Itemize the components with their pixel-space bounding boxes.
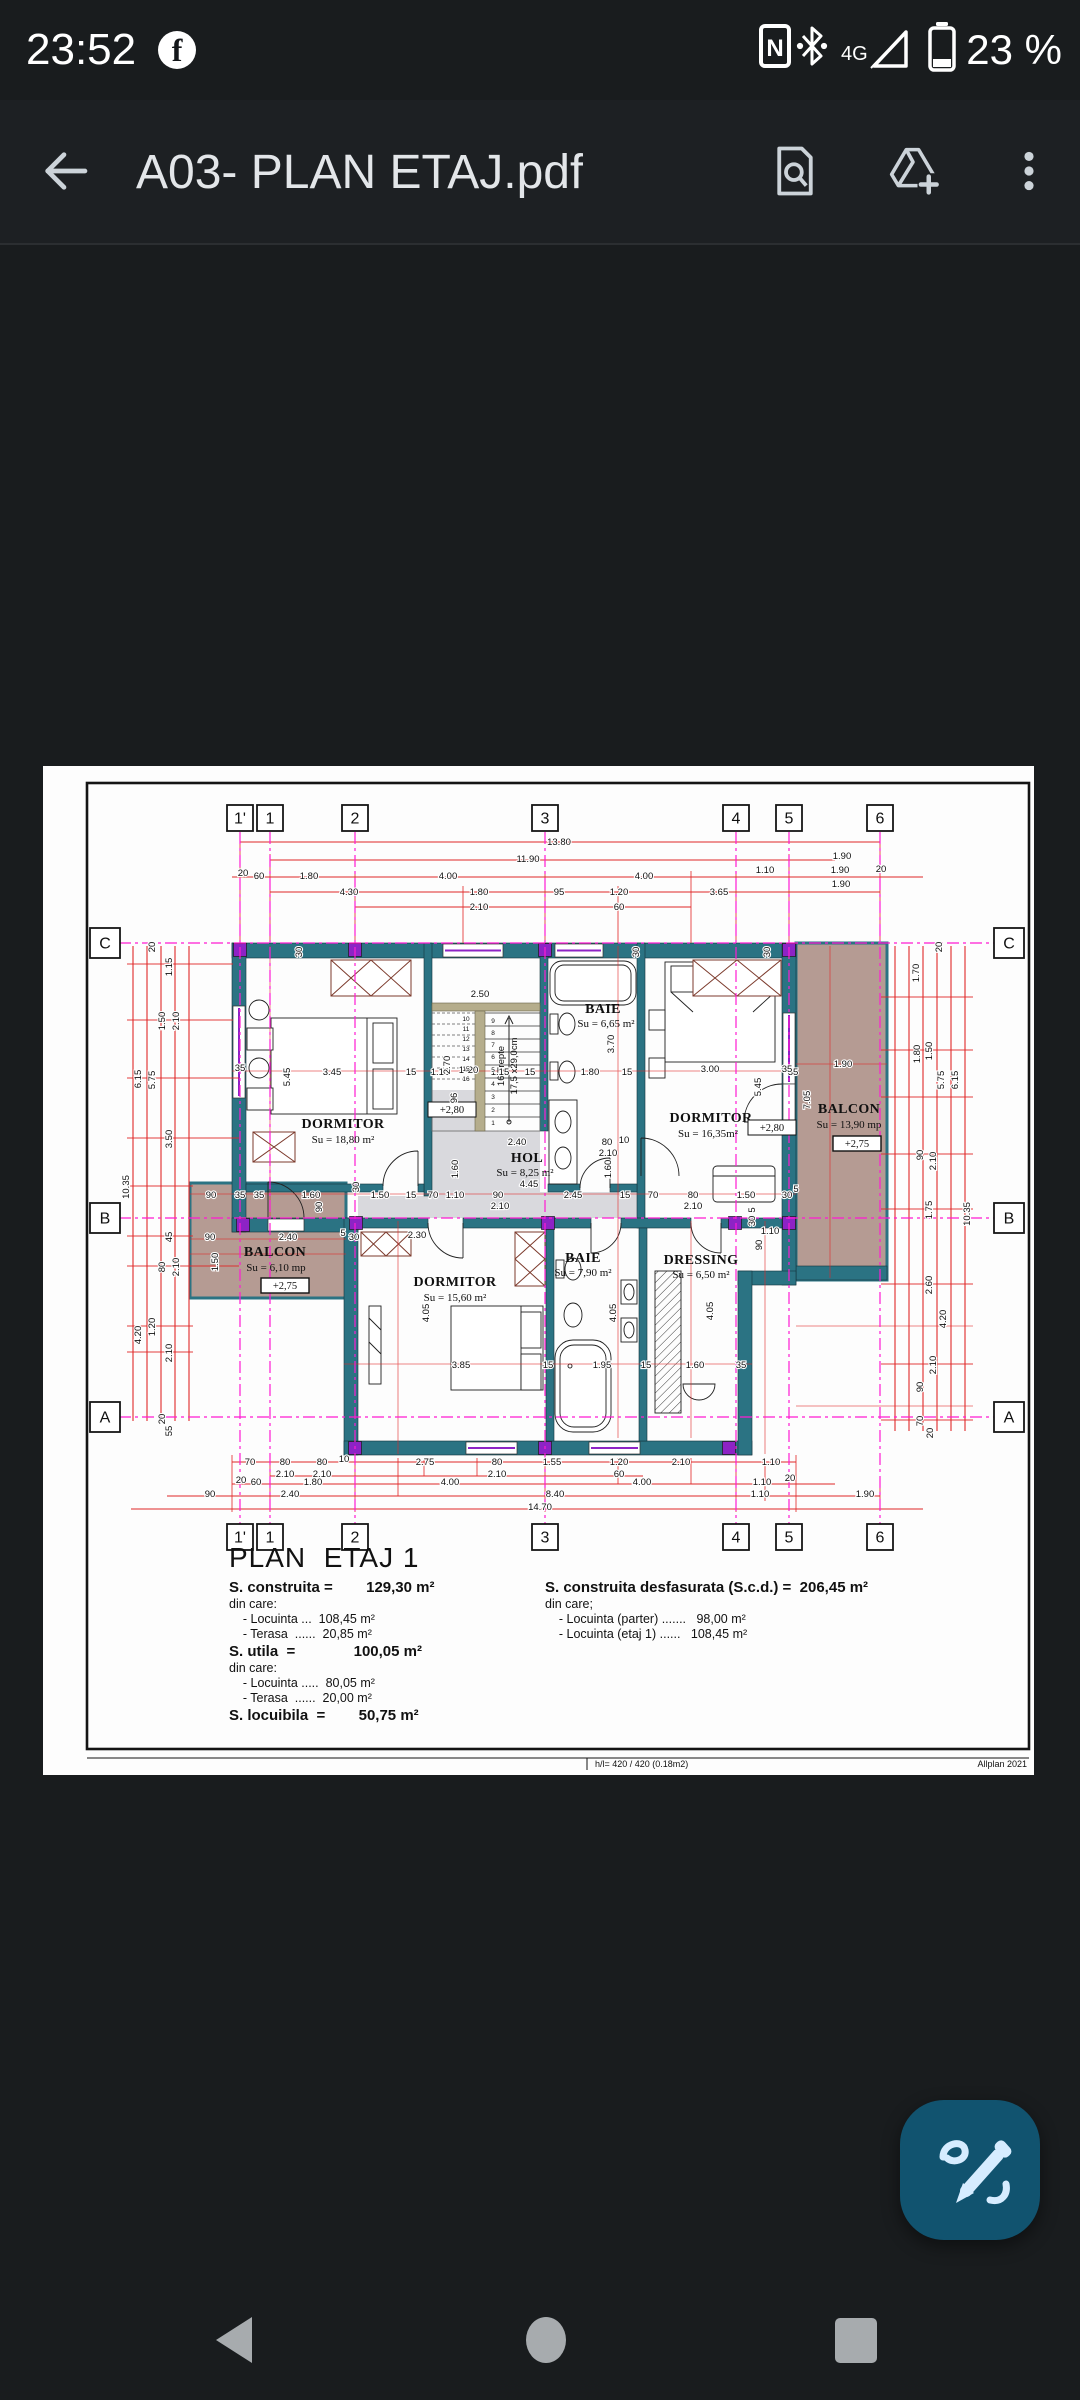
back-triangle-icon	[196, 2301, 276, 2381]
svg-text:4.05: 4.05	[421, 1304, 432, 1323]
room-name: DORMITOR	[301, 1117, 385, 1132]
svg-text:5.45: 5.45	[282, 1068, 293, 1087]
svg-text:35: 35	[736, 1360, 747, 1371]
svg-text:1.50: 1.50	[210, 1253, 221, 1272]
svg-text:5: 5	[491, 1067, 495, 1074]
level-value: +2,80	[760, 1123, 784, 1134]
svg-text:1.10: 1.10	[446, 1190, 465, 1201]
svg-text:1: 1	[266, 811, 275, 828]
svg-text:16: 16	[462, 1076, 470, 1083]
svg-text:4.30: 4.30	[340, 887, 359, 898]
facebook-icon: f	[158, 31, 196, 69]
svg-text:90: 90	[915, 1382, 926, 1393]
svg-text:30: 30	[631, 947, 642, 958]
svg-text:4.20: 4.20	[133, 1326, 144, 1345]
svg-text:20: 20	[925, 1428, 936, 1439]
floor-plan-drawing: 1'1234561'123456CBACBA DORMITOR Su = 18,…	[43, 766, 1034, 1775]
svg-text:10: 10	[619, 1135, 630, 1146]
svg-text:1.80: 1.80	[581, 1067, 600, 1078]
plan-title: PLAN ETAJ 1	[229, 1542, 435, 1574]
svg-text:15: 15	[406, 1190, 417, 1201]
svg-text:1.50: 1.50	[371, 1190, 390, 1201]
summary-line: - Terasa ...... 20,00 m²	[229, 1691, 435, 1706]
svg-text:35: 35	[254, 1190, 265, 1201]
summary-line: - Locuinta (etaj 1) ...... 108,45 m²	[545, 1627, 868, 1642]
svg-text:1.50: 1.50	[737, 1190, 756, 1201]
svg-text:30: 30	[762, 947, 773, 958]
svg-text:4.05: 4.05	[705, 1302, 716, 1321]
battery-percent: 23 %	[966, 26, 1062, 74]
svg-text:2.10: 2.10	[672, 1457, 691, 1468]
find-in-page-button[interactable]	[762, 138, 828, 207]
svg-text:1.10: 1.10	[756, 865, 775, 876]
level-value: +2,75	[273, 1281, 297, 1292]
svg-text:2.75: 2.75	[416, 1457, 435, 1468]
summary-line: - Terasa ...... 20,85 m²	[229, 1627, 435, 1642]
svg-text:20: 20	[157, 1414, 168, 1425]
level-value: +2,80	[440, 1105, 464, 1116]
svg-text:95: 95	[554, 887, 565, 898]
svg-text:5.45: 5.45	[753, 1078, 764, 1097]
svg-text:20: 20	[236, 1475, 247, 1486]
svg-text:13: 13	[462, 1046, 470, 1053]
svg-text:2.10: 2.10	[928, 1356, 939, 1375]
level-value: +2,75	[845, 1139, 869, 1150]
svg-text:1.90: 1.90	[831, 865, 850, 876]
svg-text:15: 15	[406, 1067, 417, 1078]
svg-text:4.45: 4.45	[520, 1179, 539, 1190]
svg-text:1.60: 1.60	[603, 1160, 614, 1179]
nfc-icon: N	[761, 26, 789, 66]
footer-scale: h/l= 420 / 420 (0.18m2)	[595, 1759, 688, 1769]
room-name: BALCON	[244, 1245, 306, 1260]
back-button[interactable]	[30, 137, 98, 208]
room-name: DORMITOR	[413, 1275, 497, 1290]
add-to-drive-icon	[886, 144, 940, 198]
summary-line: S. construita desfasurata (S.c.d.) = 206…	[545, 1578, 868, 1597]
svg-text:90: 90	[754, 1240, 765, 1251]
svg-text:15: 15	[543, 1360, 554, 1371]
svg-text:N: N	[767, 35, 784, 62]
svg-text:90: 90	[205, 1489, 216, 1500]
svg-text:10.35: 10.35	[962, 1202, 973, 1226]
svg-text:4: 4	[732, 1530, 741, 1547]
status-icon-cluster: N 4G	[758, 18, 958, 82]
summary-line: - Locuinta ... 108,45 m²	[229, 1612, 435, 1627]
overflow-menu-button[interactable]	[998, 138, 1060, 207]
svg-text:2.10: 2.10	[599, 1148, 618, 1159]
room-area: Su = 6,65 m²	[577, 1018, 635, 1030]
back-arrow-icon	[36, 143, 92, 199]
svg-text:90: 90	[493, 1190, 504, 1201]
svg-text:6.15: 6.15	[950, 1071, 961, 1090]
svg-text:14.70: 14.70	[528, 1502, 552, 1513]
svg-text:2.10: 2.10	[928, 1152, 939, 1171]
svg-text:4.05: 4.05	[608, 1304, 619, 1323]
svg-text:10: 10	[339, 1454, 350, 1465]
svg-text:30: 30	[294, 947, 305, 958]
svg-text:2.30: 2.30	[408, 1230, 427, 1241]
nav-back-button[interactable]	[190, 2300, 270, 2380]
room-area: Su = 13,90 mp	[817, 1119, 882, 1131]
svg-text:6.15: 6.15	[133, 1070, 144, 1089]
svg-text:4G: 4G	[841, 43, 868, 65]
svg-text:30: 30	[782, 1190, 793, 1201]
pdf-viewport[interactable]: 1'1234561'123456CBACBA DORMITOR Su = 18,…	[0, 245, 1080, 2280]
navigation-bar	[0, 2280, 1080, 2400]
svg-text:1.15: 1.15	[164, 958, 175, 977]
svg-text:11.90: 11.90	[516, 854, 539, 865]
summary-line: S. utila = 100,05 m²	[229, 1642, 435, 1661]
svg-text:1.50: 1.50	[157, 1012, 168, 1031]
summary-line: din care:	[229, 1597, 435, 1612]
svg-text:4.20: 4.20	[938, 1310, 949, 1329]
status-bar: 23:52 f N 4G	[0, 0, 1080, 100]
svg-text:4: 4	[732, 811, 741, 828]
document-title: A03- PLAN ETAJ.pdf	[136, 145, 583, 200]
svg-text:6: 6	[491, 1054, 495, 1061]
svg-text:4.00: 4.00	[441, 1477, 460, 1488]
svg-text:55: 55	[164, 1426, 175, 1437]
svg-text:70: 70	[428, 1190, 439, 1201]
svg-text:80: 80	[688, 1190, 699, 1201]
summary-line: S. construita = 129,30 m²	[229, 1578, 435, 1597]
room-area: Su = 16,35m²	[678, 1128, 739, 1140]
svg-text:1.75: 1.75	[924, 1201, 935, 1220]
summary-line: - Locuinta (parter) ....... 98,00 m²	[545, 1612, 868, 1627]
summary-line: din care;	[545, 1597, 868, 1612]
svg-text:1.60: 1.60	[450, 1160, 461, 1179]
svg-text:80: 80	[317, 1457, 328, 1468]
svg-text:15: 15	[622, 1067, 633, 1078]
svg-text:13.80: 13.80	[547, 837, 571, 848]
svg-text:2.40: 2.40	[508, 1137, 527, 1148]
svg-text:4.00: 4.00	[633, 1477, 652, 1488]
svg-text:4: 4	[491, 1081, 495, 1088]
battery-icon	[930, 22, 954, 70]
footer-software: Allplan 2021	[977, 1759, 1027, 1769]
svg-text:20: 20	[785, 1473, 796, 1484]
svg-text:4.00: 4.00	[635, 871, 654, 882]
add-to-drive-button[interactable]	[880, 138, 946, 207]
room-area: Su = 7,90 m²	[554, 1267, 612, 1279]
svg-text:60: 60	[251, 1477, 262, 1488]
svg-text:1.20: 1.20	[147, 1318, 158, 1337]
svg-text:3: 3	[541, 1530, 550, 1547]
svg-text:1.80: 1.80	[300, 871, 319, 882]
svg-text:C: C	[1003, 936, 1015, 953]
room-area: Su = 15,60 m²	[424, 1292, 487, 1304]
svg-text:80: 80	[602, 1137, 613, 1148]
svg-text:2.50: 2.50	[471, 989, 490, 1000]
svg-text:C: C	[99, 936, 111, 953]
svg-text:1.20: 1.20	[610, 887, 629, 898]
svg-text:15: 15	[525, 1067, 536, 1078]
svg-text:96: 96	[449, 1093, 460, 1104]
stair-note: 16 Trepte 17,5 x29,0cm	[496, 1037, 520, 1094]
svg-text:2.10: 2.10	[470, 902, 489, 913]
svg-text:7: 7	[491, 1042, 495, 1049]
svg-text:1.95: 1.95	[593, 1360, 612, 1371]
svg-text:5: 5	[785, 1530, 794, 1547]
svg-text:5: 5	[340, 1228, 345, 1239]
svg-text:10: 10	[462, 1016, 470, 1023]
annotate-fab[interactable]	[900, 2100, 1040, 2240]
summary-line: din care:	[229, 1661, 435, 1676]
stair-note-line1: 16 Trepte	[496, 1046, 507, 1086]
svg-text:2: 2	[491, 1107, 495, 1114]
svg-text:3.85: 3.85	[452, 1360, 471, 1371]
svg-text:80: 80	[492, 1457, 503, 1468]
svg-text:30: 30	[349, 1232, 360, 1243]
room-name: BALCON	[818, 1102, 880, 1117]
summary-line: S. locuibila = 50,75 m²	[229, 1706, 435, 1725]
svg-text:6: 6	[876, 1530, 885, 1547]
svg-text:60: 60	[614, 1469, 625, 1480]
svg-text:2.10: 2.10	[276, 1469, 295, 1480]
svg-text:2.40: 2.40	[281, 1489, 300, 1500]
summary-line: - Locuinta ..... 80,05 m²	[229, 1676, 435, 1691]
svg-text:1.55: 1.55	[543, 1457, 562, 1468]
svg-text:B: B	[100, 1211, 111, 1228]
svg-text:5: 5	[785, 811, 794, 828]
svg-text:11: 11	[463, 1026, 470, 1033]
svg-text:2.10: 2.10	[488, 1469, 507, 1480]
svg-text:35: 35	[235, 1190, 246, 1201]
svg-text:3.65: 3.65	[710, 887, 729, 898]
svg-text:2.45: 2.45	[564, 1190, 583, 1201]
svg-text:14: 14	[462, 1056, 470, 1063]
room-area: Su = 6,50 m²	[672, 1269, 730, 1281]
stair-note-line2: 17,5 x29,0cm	[509, 1037, 520, 1094]
svg-text:2: 2	[351, 811, 360, 828]
svg-text:A: A	[100, 1410, 111, 1427]
clock: 23:52	[26, 25, 136, 75]
svg-text:2.60: 2.60	[924, 1276, 935, 1295]
svg-text:2.10: 2.10	[684, 1201, 703, 1212]
svg-text:30: 30	[351, 1182, 362, 1193]
svg-text:1.50: 1.50	[924, 1042, 935, 1061]
svg-text:90: 90	[915, 1150, 926, 1161]
svg-text:90: 90	[205, 1232, 216, 1243]
svg-text:20: 20	[147, 942, 158, 953]
svg-text:80: 80	[157, 1262, 168, 1273]
signal-triangle-icon: 4G	[841, 32, 906, 68]
svg-text:2.10: 2.10	[164, 1344, 175, 1363]
appbar-actions	[762, 138, 1060, 207]
svg-text:5.75: 5.75	[936, 1071, 947, 1090]
nav-home-button[interactable]	[500, 2300, 580, 2380]
svg-text:7.05: 7.05	[802, 1091, 813, 1110]
svg-text:A: A	[1004, 1410, 1015, 1427]
svg-text:1.70: 1.70	[911, 964, 922, 983]
svg-text:4.00: 4.00	[439, 871, 458, 882]
svg-text:70: 70	[245, 1457, 256, 1468]
svg-text:15: 15	[620, 1190, 631, 1201]
svg-text:1.10: 1.10	[753, 1477, 772, 1488]
room-name: BAIE	[585, 1002, 621, 1017]
svg-text:60: 60	[614, 902, 625, 913]
svg-text:1.20: 1.20	[610, 1457, 629, 1468]
overflow-menu-icon	[1004, 144, 1054, 198]
svg-text:15: 15	[462, 1066, 470, 1073]
svg-text:90: 90	[314, 1202, 325, 1213]
svg-text:20: 20	[238, 868, 249, 879]
svg-text:60: 60	[254, 871, 265, 882]
annotate-pen-icon	[906, 2101, 1046, 2241]
svg-text:1.10: 1.10	[761, 1226, 780, 1237]
svg-text:70: 70	[648, 1190, 659, 1201]
area-summary-left: PLAN ETAJ 1 S. construita = 129,30 m² di…	[229, 1542, 435, 1725]
svg-text:1.60: 1.60	[302, 1190, 321, 1201]
svg-text:2.10: 2.10	[491, 1201, 510, 1212]
svg-text:5.75: 5.75	[147, 1071, 158, 1090]
svg-text:1.10: 1.10	[751, 1489, 770, 1500]
svg-text:3.70: 3.70	[606, 1035, 617, 1054]
area-summary-right: S. construita desfasurata (S.c.d.) = 206…	[545, 1578, 868, 1642]
svg-text:1.90: 1.90	[833, 851, 852, 862]
svg-text:35: 35	[782, 1064, 793, 1075]
svg-text:1.10: 1.10	[762, 1457, 781, 1468]
room-name: DORMITOR	[669, 1111, 753, 1126]
svg-text:2.40: 2.40	[279, 1232, 298, 1243]
svg-text:1: 1	[491, 1120, 495, 1127]
svg-text:35: 35	[235, 1063, 246, 1074]
recents-square-icon	[816, 2301, 896, 2381]
svg-text:1.60: 1.60	[686, 1360, 705, 1371]
room-name: DRESSING	[664, 1253, 739, 1268]
svg-text:20: 20	[876, 864, 887, 875]
status-icons: N 4G 23 %	[758, 0, 1068, 100]
svg-text:1': 1'	[234, 811, 246, 828]
svg-text:B: B	[1004, 1211, 1015, 1228]
room-name: HOL	[511, 1151, 543, 1166]
svg-text:1.80: 1.80	[304, 1477, 323, 1488]
phone-screen: 23:52 f N 4G	[0, 0, 1080, 2400]
svg-text:3.45: 3.45	[323, 1067, 342, 1078]
pdf-page[interactable]: 1'1234561'123456CBACBA DORMITOR Su = 18,…	[43, 766, 1034, 1775]
svg-text:10.35: 10.35	[121, 1175, 132, 1199]
sheet-footer: h/l= 420 / 420 (0.18m2) Allplan 2021	[595, 1759, 1027, 1769]
svg-text:3: 3	[491, 1094, 495, 1101]
app-bar: A03- PLAN ETAJ.pdf	[0, 100, 1080, 245]
svg-text:3.00: 3.00	[701, 1064, 720, 1075]
svg-text:2.10: 2.10	[171, 1258, 182, 1277]
svg-text:45: 45	[164, 1232, 175, 1243]
svg-text:2.10: 2.10	[171, 1012, 182, 1031]
room-area: Su = 18,80 m²	[312, 1134, 375, 1146]
svg-text:1.90: 1.90	[856, 1489, 875, 1500]
room-area: Su = 6,10 mp	[246, 1262, 306, 1274]
svg-text:1.90: 1.90	[832, 879, 851, 890]
svg-text:3: 3	[541, 811, 550, 828]
svg-text:5: 5	[793, 1184, 798, 1195]
room-area: Su = 8,25 m²	[496, 1167, 554, 1179]
svg-text:1.80: 1.80	[470, 887, 489, 898]
home-circle-icon	[506, 2301, 586, 2381]
bluetooth-icon	[799, 28, 826, 64]
svg-text:3.50: 3.50	[164, 1130, 175, 1149]
svg-text:30: 30	[747, 1216, 758, 1227]
svg-text:9: 9	[491, 1018, 495, 1025]
svg-text:1.90: 1.90	[834, 1059, 853, 1070]
svg-text:20: 20	[934, 942, 945, 953]
svg-text:70: 70	[915, 1416, 926, 1427]
svg-text:1.80: 1.80	[912, 1045, 923, 1064]
find-in-page-icon	[768, 144, 822, 198]
svg-text:2.70: 2.70	[442, 1056, 453, 1075]
svg-text:90: 90	[206, 1190, 217, 1201]
svg-text:80: 80	[280, 1457, 291, 1468]
svg-text:5: 5	[747, 1207, 758, 1212]
svg-text:8: 8	[491, 1030, 495, 1037]
nav-recents-button[interactable]	[810, 2300, 890, 2380]
room-name: BAIE	[565, 1251, 601, 1266]
svg-text:12: 12	[462, 1036, 470, 1043]
svg-text:15: 15	[641, 1360, 652, 1371]
svg-text:6: 6	[876, 811, 885, 828]
svg-text:8.40: 8.40	[546, 1489, 565, 1500]
